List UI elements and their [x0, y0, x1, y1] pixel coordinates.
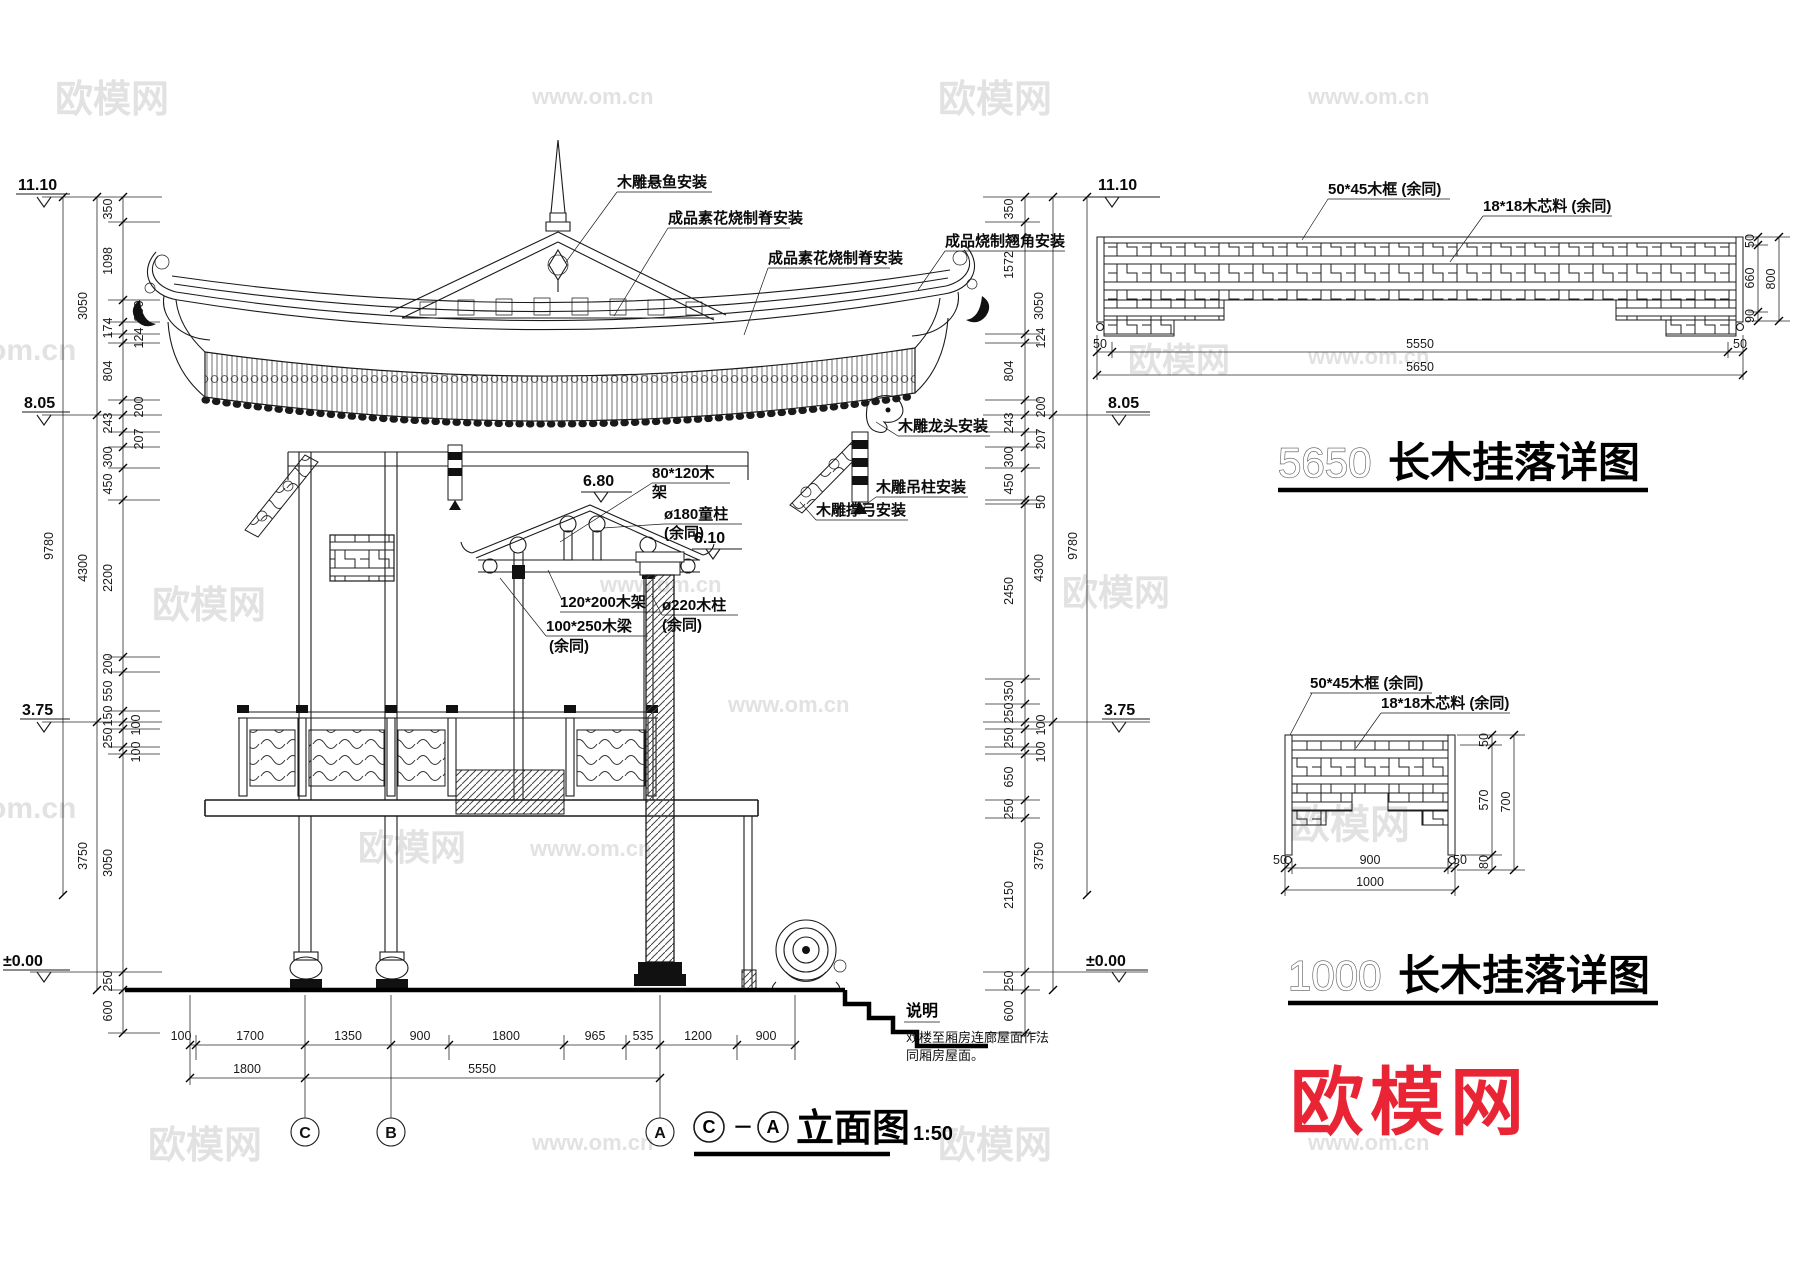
dim-label: 124: [132, 328, 146, 349]
detail-title: 1000 长木挂落详图: [1288, 952, 1658, 1003]
dim-label: 5550: [1406, 337, 1434, 351]
dim-label: 300: [1002, 447, 1016, 468]
dim-label: 200: [101, 654, 115, 675]
dim-label: 50: [1477, 733, 1491, 747]
left-hanging-post: [448, 445, 462, 510]
dim-label: 900: [756, 1029, 777, 1043]
dim-label: 250: [101, 728, 115, 749]
dim-label: 965: [585, 1029, 606, 1043]
dim-label: 50: [1093, 337, 1107, 351]
ridge-curves: [172, 270, 950, 330]
dim-label: 200: [132, 397, 146, 418]
callout-label: 50*45木框 (余同): [1328, 180, 1441, 198]
grid-letter: A: [654, 1125, 666, 1142]
gable-lines: [390, 232, 726, 320]
callout-label: (余同): [662, 616, 702, 634]
dim-label: 1800: [492, 1029, 520, 1043]
dim-label: 250: [1002, 971, 1016, 992]
dim-label: 243: [1002, 413, 1016, 434]
callout-label: 80*120木: [652, 464, 716, 482]
dim-label: 2150: [1002, 881, 1016, 909]
callout-label: 100*250木梁: [546, 617, 633, 635]
dim-label: 900: [410, 1029, 431, 1043]
dim-label: 207: [132, 429, 146, 450]
elevation-marker: 11.10 8.05 3.75 ±0.00: [3, 177, 70, 982]
dim-label: 100: [1034, 742, 1048, 763]
dim-label: 350: [1002, 199, 1016, 220]
dim-label: 150: [101, 706, 115, 727]
level-value: 8.05: [1108, 395, 1139, 412]
lattice-window: [330, 535, 394, 581]
view-title: C － A 立面图 1:50: [694, 1108, 953, 1154]
dim-label: 250: [1002, 799, 1016, 820]
callout-label: 木雕悬鱼安装: [616, 173, 708, 191]
lattice-panel-5650: [1097, 237, 1744, 336]
dim-label: 535: [633, 1029, 654, 1043]
dim-label: 4300: [1032, 554, 1046, 582]
callout-label: 成品素花烧制脊安装: [668, 209, 804, 227]
callout-label: ø220木柱: [662, 596, 726, 614]
watermark-url: www.om.cn: [529, 836, 651, 861]
view-title-text: 立面图: [796, 1108, 910, 1150]
watermark-brand: 欧模网: [55, 79, 169, 121]
watermark-brand: 欧模网: [1062, 572, 1170, 613]
dim-label: 1700: [236, 1029, 264, 1043]
dim-label: 124: [1034, 328, 1048, 349]
detail-title: 5650 长木挂落详图: [1278, 439, 1648, 490]
watermark-url: www.om.cn: [531, 1130, 653, 1155]
dim-label: 600: [101, 1001, 115, 1022]
dim-label: 800: [1764, 269, 1778, 290]
dim-label: 1098: [101, 247, 115, 275]
dim-label: 3050: [1032, 292, 1046, 320]
grid-letter: C: [299, 1125, 311, 1142]
notes-block: 说明 戏楼至厢房连廊屋面作法 同厢房屋面。: [904, 1001, 1049, 1063]
dim-label: 2450: [1002, 577, 1016, 605]
detail-title-text: 长木挂落详图: [1388, 439, 1640, 486]
notes-text: 戏楼至厢房连廊屋面作法: [906, 1030, 1049, 1045]
cad-sheet: 欧模网 www.om.cn 欧模网 www.om.cn om.cn 欧模网 ww…: [0, 0, 1800, 1262]
dim-label: 450: [101, 474, 115, 495]
callout-label: 120*200木架: [560, 593, 646, 611]
watermark-logo-red: 欧模网: [1290, 1061, 1530, 1144]
hanging-fish-ornament: [548, 255, 568, 275]
detail-title-number: 5650: [1278, 439, 1371, 486]
level-value: 3.75: [1104, 702, 1135, 719]
watermark-brand: 欧模网: [938, 1125, 1052, 1167]
dim-label: 250: [101, 971, 115, 992]
plinth-hatch: [742, 970, 756, 990]
watermark-url: om.cn: [0, 792, 76, 825]
pavilion-elevation: 6.80 6.10 木雕悬鱼安装 成品素花烧制脊安装 成品素花烧制脊安装 成品烧…: [125, 140, 1066, 1046]
detail-title-number: 1000: [1288, 952, 1381, 999]
notes-text: 同厢房屋面。: [906, 1048, 984, 1063]
dim-label: 9780: [1066, 532, 1080, 560]
dim-label: 2200: [101, 564, 115, 592]
dim-label: 700: [1499, 792, 1513, 813]
dim-label: 804: [1002, 361, 1016, 382]
watermark-brand: 欧模网: [938, 79, 1052, 121]
right-corner-ornament: [912, 246, 989, 336]
level-value: 11.10: [18, 177, 57, 194]
dim-label: 174: [101, 318, 115, 339]
watermark-url: www.om.cn: [727, 692, 849, 717]
left-corner-ornament: [133, 252, 210, 340]
extension-lines: [985, 222, 1040, 1033]
hanging-fish-ornament: [549, 250, 567, 292]
dim-label: 300: [101, 447, 115, 468]
view-scale: 1:50: [913, 1123, 953, 1145]
title-grid-letter: C: [703, 1117, 716, 1137]
dim-label: 1572: [1002, 251, 1016, 279]
column-base: [290, 952, 322, 988]
elevation-marker: 11.10: [1088, 177, 1160, 207]
dim-label: 5550: [468, 1062, 496, 1076]
dim-label: 5650: [1406, 360, 1434, 374]
watermark-brand: 欧模网: [148, 1125, 262, 1167]
dim-label: 650: [1002, 767, 1016, 788]
dim-label: 200: [1034, 397, 1048, 418]
dim-label: 250: [1002, 728, 1016, 749]
dim-label: 900: [1360, 853, 1381, 867]
watermark-url: www.om.cn: [1307, 84, 1429, 109]
level-value: ±0.00: [1086, 953, 1126, 970]
dim-label: 90: [1743, 309, 1757, 323]
callout-label: ø180童柱: [664, 505, 728, 523]
dim-label: 350: [1002, 681, 1016, 702]
dim-label: 80: [1477, 855, 1491, 869]
watermark-url: www.om.cn: [531, 84, 653, 109]
railing: [237, 705, 658, 814]
dim-label: 50: [1733, 337, 1747, 351]
level-value: 6.80: [583, 473, 614, 490]
callout-label: (余同): [664, 524, 704, 542]
dim-label: 660: [1743, 268, 1757, 289]
dim-label: 3050: [76, 292, 90, 320]
dim-label: 100: [1034, 715, 1048, 736]
left-bracket-bow: [245, 455, 318, 537]
callout-label: 18*18木芯料 (余同): [1483, 197, 1611, 215]
dim-label: 243: [101, 413, 115, 434]
callout-label: 木雕撑弓安装: [815, 501, 907, 519]
roof-finial: [546, 140, 570, 231]
dim-label: 3750: [76, 842, 90, 870]
grid-letter: B: [385, 1125, 397, 1142]
dim-label: 600: [1002, 1001, 1016, 1022]
dim-label: 50: [1034, 495, 1048, 509]
dim-label: 100: [129, 742, 143, 763]
watermark-brand: 欧模网: [1128, 342, 1230, 380]
dim-label: 570: [1477, 790, 1491, 811]
dim-label: 4300: [76, 554, 90, 582]
watermark-brand: 欧模网: [358, 827, 466, 868]
dim-label: 1800: [233, 1062, 261, 1076]
level-value: ±0.00: [3, 953, 43, 970]
detail-title-text: 长木挂落详图: [1398, 952, 1650, 999]
dim-label: 250: [1002, 703, 1016, 724]
floor-edge-support: [744, 816, 752, 990]
dim-label: 550: [101, 681, 115, 702]
dim-label: 1200: [684, 1029, 712, 1043]
dim-label: 3050: [101, 849, 115, 877]
dim-label: 1350: [334, 1029, 362, 1043]
elevation-marker: 8.05 3.75 ±0.00: [1086, 395, 1150, 982]
level-value: 8.05: [24, 395, 55, 412]
dim-label: 100: [129, 715, 143, 736]
gable-purlins: [420, 298, 702, 315]
dim-label: 450: [1002, 474, 1016, 495]
dim-label: 9780: [42, 532, 56, 560]
callout-label: 架: [651, 484, 667, 501]
level-value: 3.75: [22, 702, 53, 719]
dim-label: 50: [1743, 234, 1757, 248]
extension-lines: [190, 995, 795, 1118]
dimension-lines: [1025, 197, 1087, 1033]
column-base: [376, 952, 408, 988]
callout-label: (余同): [549, 637, 589, 655]
dim-label: 3750: [1032, 842, 1046, 870]
callout-label: 成品素花烧制脊安装: [768, 249, 904, 267]
dim-label: 100: [171, 1029, 192, 1043]
dim-label: 350: [101, 199, 115, 220]
dimension-ticks: [59, 193, 127, 1037]
dim-label: 207: [1034, 429, 1048, 450]
callout-label: 木雕龙头安装: [897, 417, 989, 435]
callout-label: 木雕吊柱安装: [875, 478, 967, 496]
callout-label: 50*45木框 (余同): [1310, 674, 1423, 692]
notes-label: 说明: [906, 1001, 938, 1020]
title-grid-letter: A: [767, 1117, 780, 1137]
dim-label: 50: [1273, 853, 1287, 867]
level-value: 11.10: [1098, 177, 1137, 194]
dim-label: 1000: [1356, 875, 1384, 889]
callout-label: 成品烧制翘角安装: [945, 232, 1066, 250]
callout-label: 18*18木芯料 (余同): [1381, 694, 1509, 712]
watermark-brand: 欧模网: [152, 585, 266, 627]
title-separator: －: [733, 1117, 753, 1139]
cad-canvas: 欧模网 www.om.cn 欧模网 www.om.cn om.cn 欧模网 ww…: [0, 0, 1800, 1262]
section-cut-hatch: [456, 770, 564, 814]
drum-stone-ornament: [772, 920, 846, 991]
watermark-url: om.cn: [0, 334, 76, 367]
detail-5650: 11.10 50*45木框 (余同) 18*18木芯料 (余同) 50 5550: [1088, 177, 1790, 490]
dim-label: 804: [101, 361, 115, 382]
